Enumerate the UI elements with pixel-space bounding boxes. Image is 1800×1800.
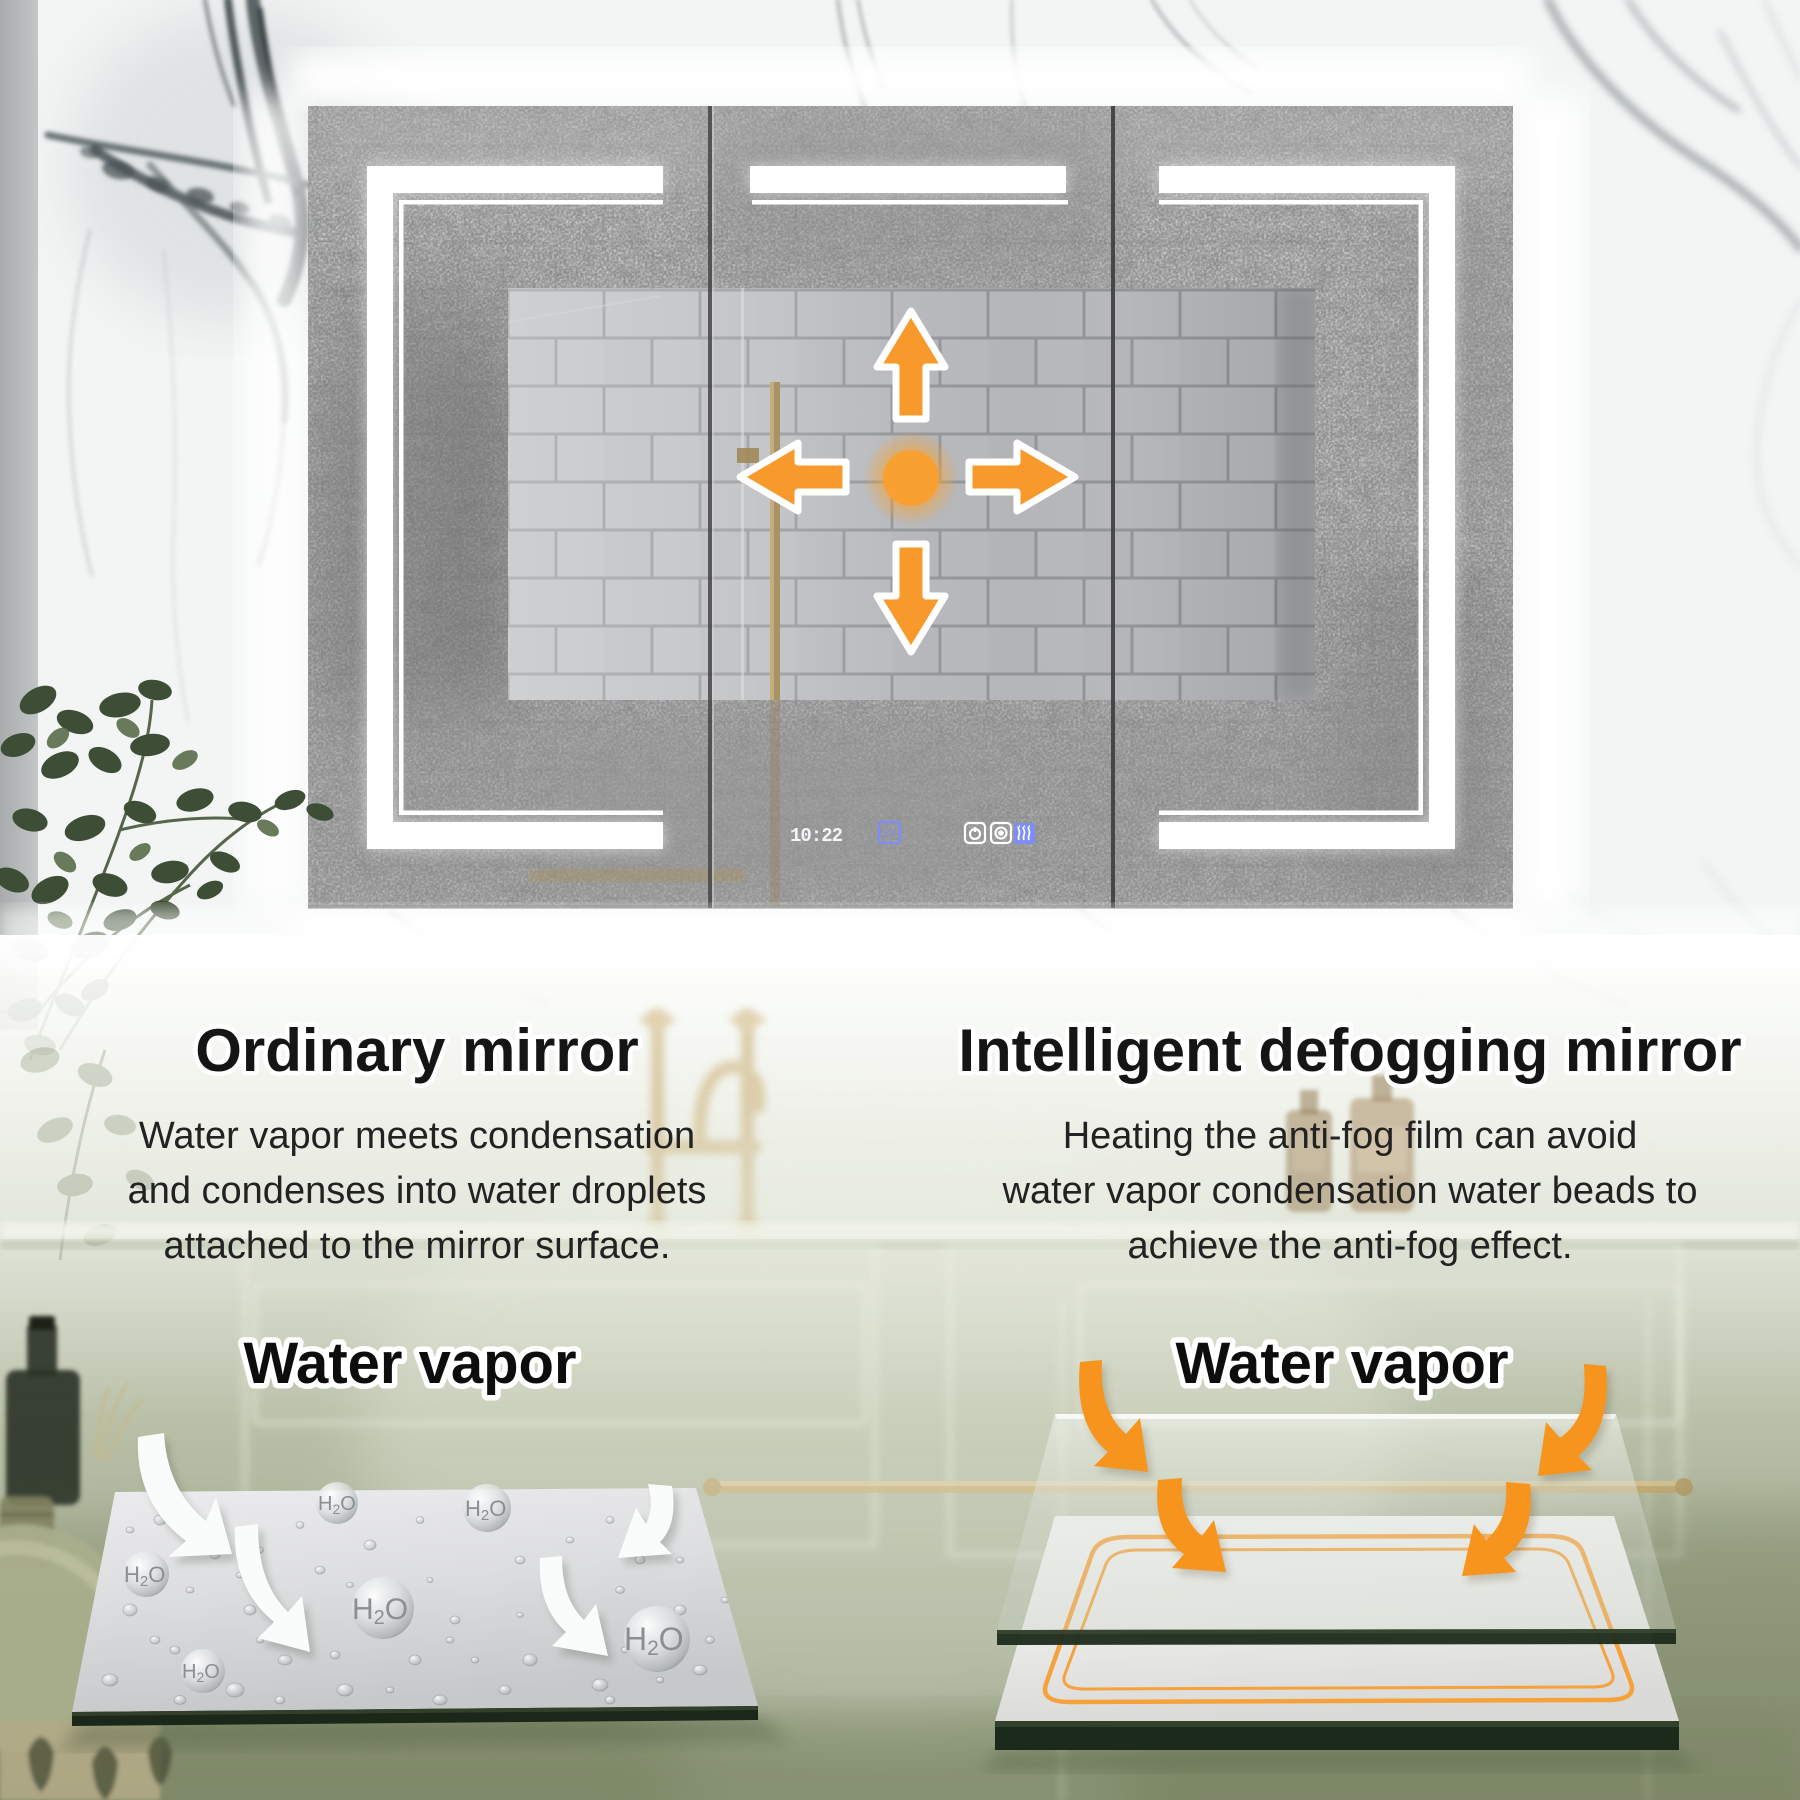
svg-text:water vapor condensation water: water vapor condensation water beads to	[1002, 1170, 1698, 1212]
svg-text:Water vapor meets condensation: Water vapor meets condensation	[139, 1115, 695, 1157]
svg-text:attached to the mirror surface: attached to the mirror surface.	[164, 1225, 671, 1267]
svg-text:Heating the anti-fog film can: Heating the anti-fog film can avoid	[1063, 1115, 1638, 1157]
svg-text:Water vapor: Water vapor	[1175, 1331, 1508, 1396]
svg-text:and condenses into water dropl: and condenses into water droplets	[128, 1170, 707, 1212]
svg-text:10:22: 10:22	[790, 825, 843, 847]
svg-text:Ordinary mirror: Ordinary mirror	[195, 1017, 638, 1084]
svg-text:Intelligent defogging mirror: Intelligent defogging mirror	[958, 1017, 1741, 1084]
svg-text:Water vapor: Water vapor	[243, 1331, 576, 1396]
svg-text:achieve the anti-fog effect.: achieve the anti-fog effect.	[1127, 1225, 1572, 1267]
